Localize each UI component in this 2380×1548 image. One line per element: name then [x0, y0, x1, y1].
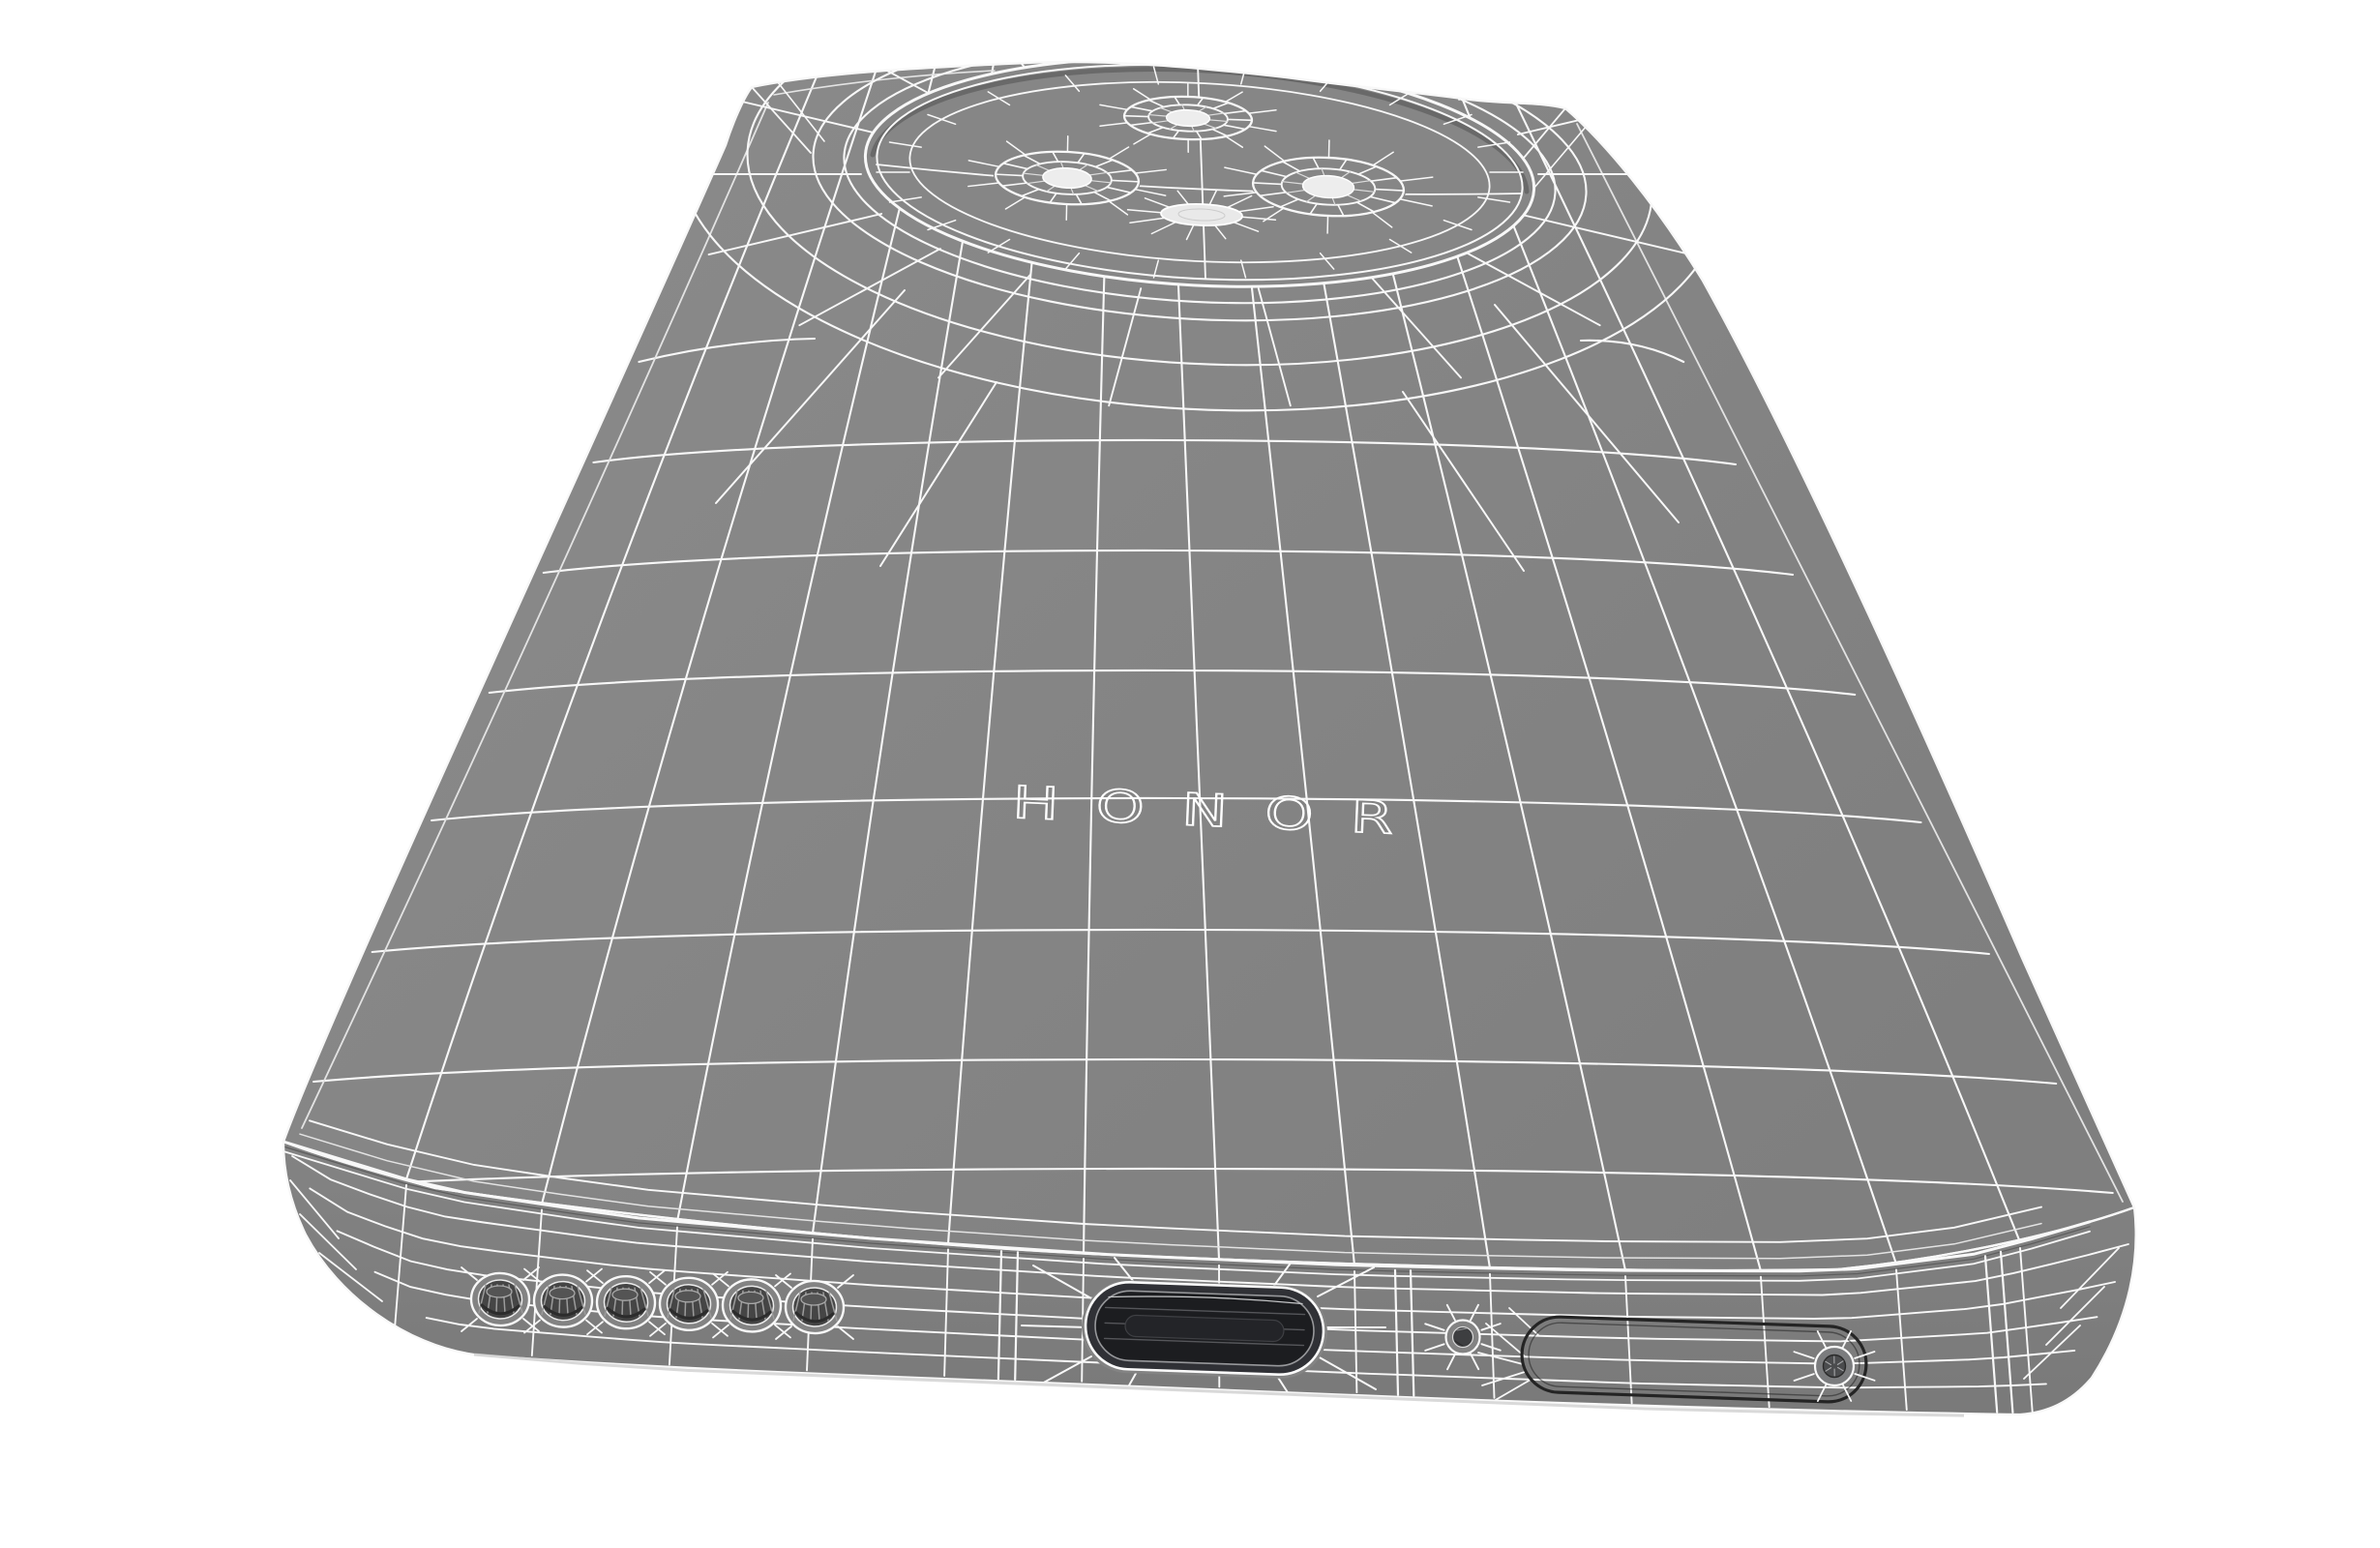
- lens-petal-spoke: [1124, 116, 1148, 117]
- usb-pill: [1080, 1279, 1328, 1381]
- speaker-hole-dome: [612, 1289, 638, 1300]
- speaker-hole-dome: [550, 1288, 575, 1299]
- lens-outer-spoke: [1066, 204, 1067, 220]
- speaker-hole: [587, 1270, 665, 1334]
- speaker-hole-dome: [738, 1292, 763, 1303]
- lens-outer-spoke: [1327, 216, 1328, 233]
- render-stage: HONOR: [0, 0, 2380, 1548]
- speaker-hole: [776, 1275, 853, 1339]
- lens-petal-spoke: [1228, 119, 1252, 120]
- speaker-hole: [524, 1269, 602, 1333]
- speaker-hole-dome: [487, 1286, 512, 1297]
- speaker-hole: [650, 1272, 728, 1336]
- lens-outer-spoke: [1328, 140, 1329, 158]
- speaker-hole: [713, 1273, 790, 1337]
- wireframe-render-canvas: HONOR: [0, 0, 2380, 1548]
- speaker-hole: [461, 1267, 539, 1331]
- lens-outer-spoke: [1187, 84, 1188, 97]
- speaker-hole-dome: [801, 1294, 826, 1305]
- speaker-hole-dome: [675, 1291, 700, 1302]
- lens-outer-spoke: [1188, 139, 1189, 152]
- lens-outer-spoke: [1067, 136, 1068, 152]
- mic-opening: [1453, 1327, 1473, 1348]
